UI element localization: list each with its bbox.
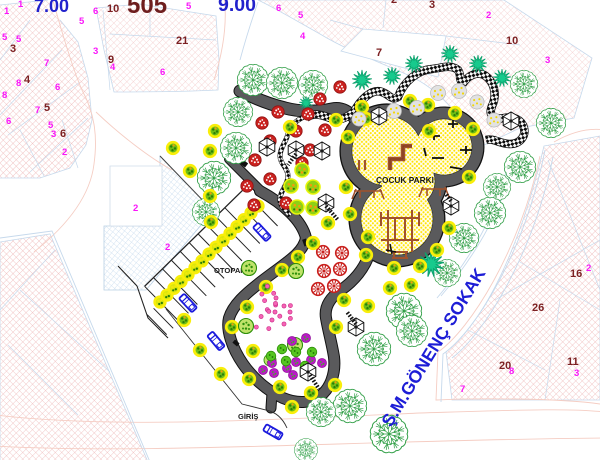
svg-text:10: 10 [107, 3, 119, 15]
svg-text:26: 26 [532, 302, 544, 314]
svg-text:5: 5 [186, 1, 192, 12]
svg-text:4: 4 [300, 31, 306, 42]
svg-text:505: 505 [127, 0, 167, 19]
svg-text:GİRİŞ: GİRİŞ [238, 412, 258, 421]
svg-text:2: 2 [586, 263, 591, 274]
svg-text:2: 2 [165, 242, 170, 253]
svg-text:7.00: 7.00 [34, 0, 69, 16]
svg-text:1: 1 [18, 0, 24, 10]
svg-text:3: 3 [429, 0, 435, 11]
svg-text:3: 3 [545, 55, 550, 66]
svg-text:ÇOCUK PARKI: ÇOCUK PARKI [376, 175, 434, 185]
svg-text:6: 6 [55, 82, 60, 93]
svg-text:3: 3 [574, 368, 579, 379]
svg-text:2: 2 [486, 10, 491, 21]
svg-text:11: 11 [567, 356, 579, 368]
svg-text:5: 5 [79, 16, 85, 27]
svg-text:8: 8 [2, 90, 7, 101]
svg-text:16: 16 [570, 268, 582, 280]
svg-text:7: 7 [44, 58, 49, 69]
svg-text:4: 4 [24, 74, 31, 86]
svg-text:9.00: 9.00 [218, 0, 256, 16]
svg-text:6: 6 [93, 6, 98, 17]
svg-text:7: 7 [35, 105, 40, 116]
svg-text:2: 2 [133, 203, 138, 214]
svg-text:9: 9 [108, 54, 114, 66]
svg-text:2: 2 [62, 147, 67, 158]
svg-text:7: 7 [376, 47, 382, 59]
svg-text:3: 3 [93, 46, 98, 57]
svg-text:21: 21 [176, 35, 188, 47]
svg-text:8: 8 [16, 78, 21, 89]
svg-text:2: 2 [391, 0, 397, 6]
svg-text:6: 6 [6, 116, 11, 127]
svg-text:10: 10 [506, 35, 518, 47]
svg-text:3: 3 [51, 129, 56, 140]
svg-text:6: 6 [160, 67, 165, 78]
svg-text:7: 7 [460, 384, 465, 395]
svg-text:5: 5 [16, 34, 22, 45]
svg-text:1: 1 [4, 6, 10, 17]
svg-text:6: 6 [276, 3, 281, 14]
svg-text:5: 5 [298, 10, 304, 21]
svg-text:5: 5 [44, 102, 50, 114]
svg-text:3: 3 [10, 43, 16, 55]
svg-text:6: 6 [60, 128, 66, 140]
svg-text:5: 5 [2, 32, 8, 43]
svg-text:20: 20 [499, 360, 511, 372]
